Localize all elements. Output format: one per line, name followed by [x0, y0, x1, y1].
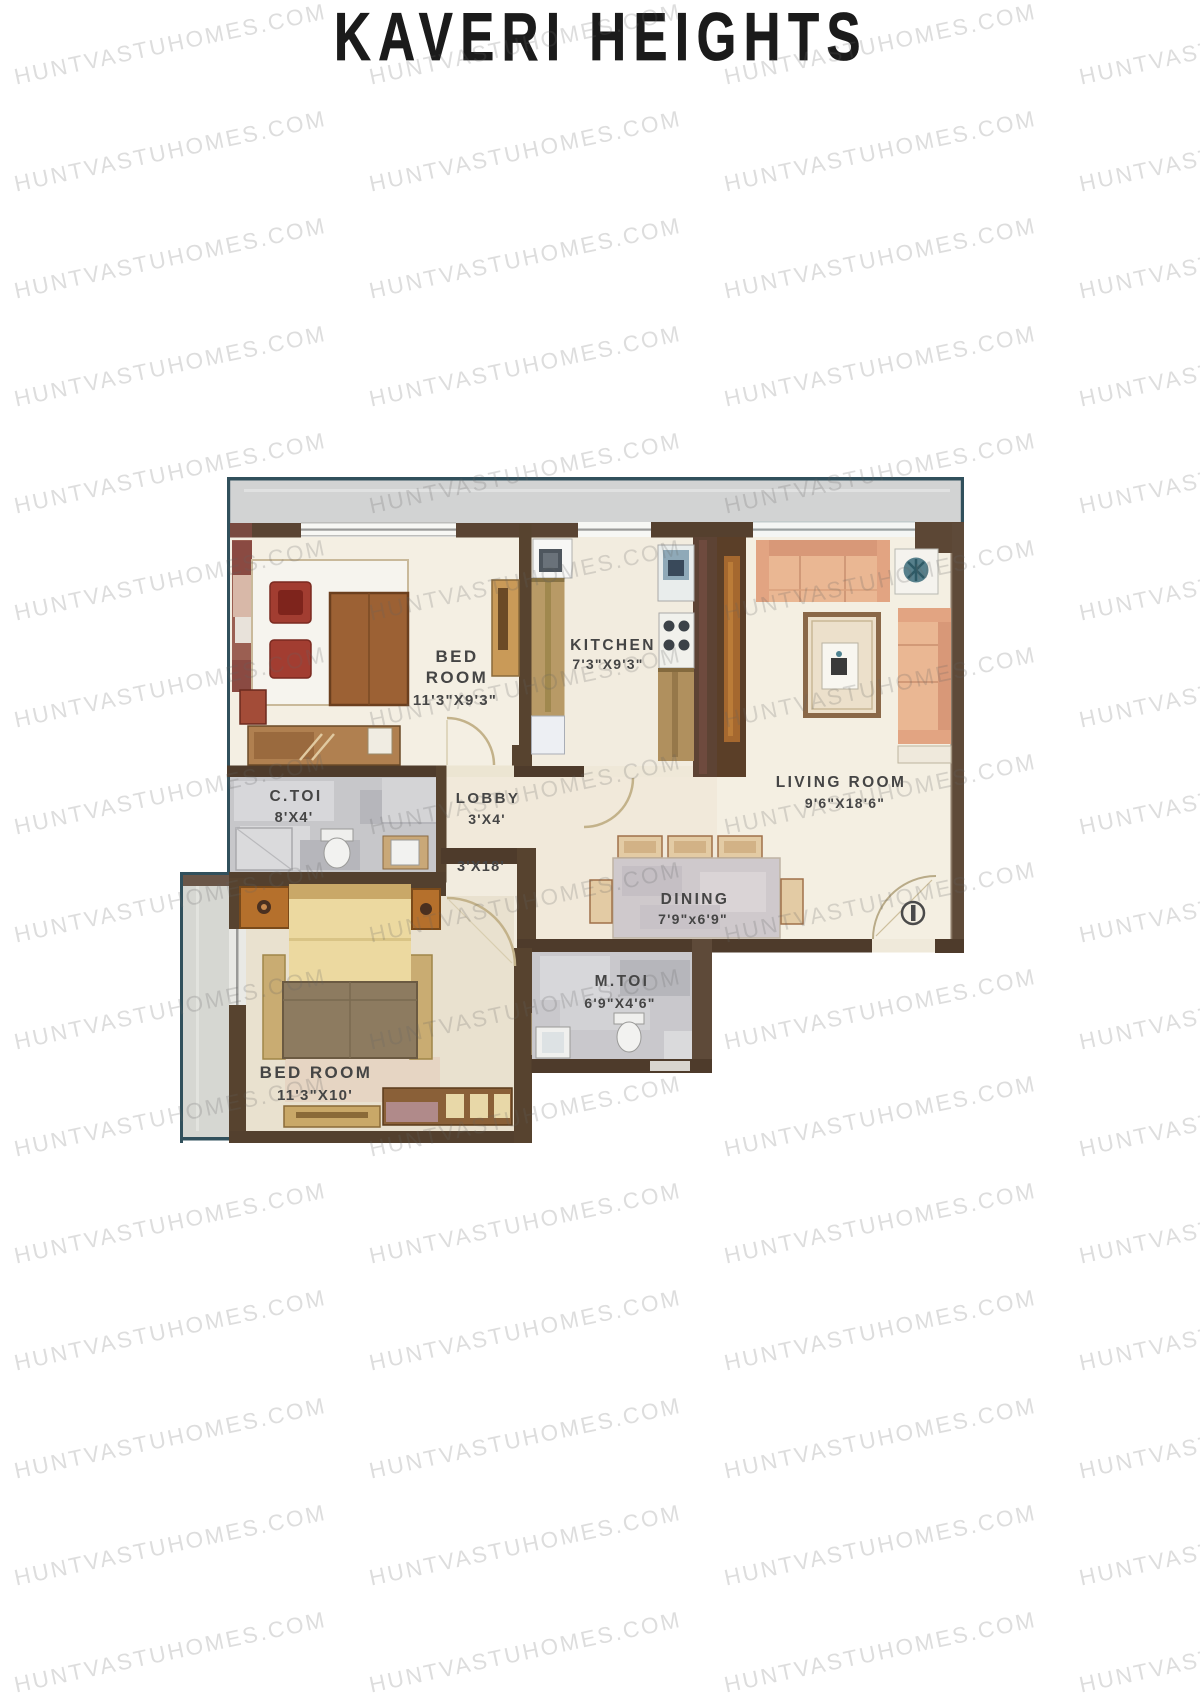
svg-text:DINING: DINING — [661, 891, 730, 908]
svg-text:8'X4': 8'X4' — [275, 810, 314, 826]
svg-text:C.TOI: C.TOI — [269, 788, 322, 805]
svg-text:BED: BED — [435, 647, 478, 666]
svg-text:7'9"x6'9": 7'9"x6'9" — [658, 911, 728, 927]
svg-text:3'X18': 3'X18' — [457, 859, 505, 875]
